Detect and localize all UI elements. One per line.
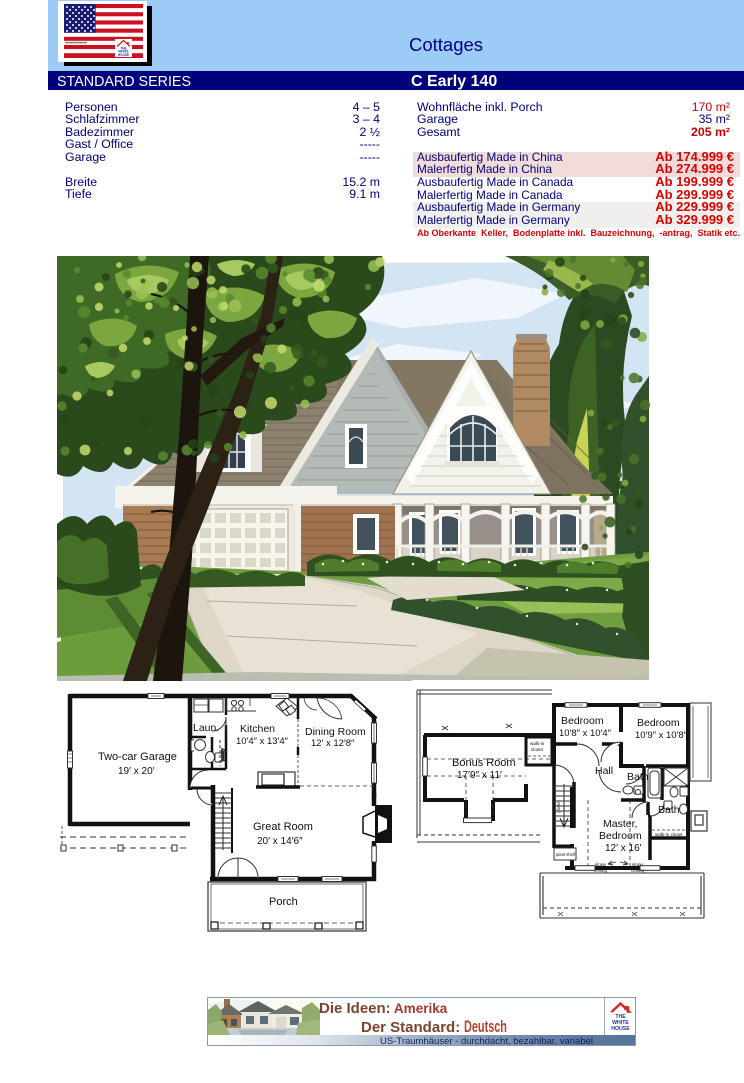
svg-text:pantry: pantry <box>220 748 225 761</box>
svg-text:19′ x 20′: 19′ x 20′ <box>118 766 155 777</box>
svg-text:10′8″ x 10′4″: 10′8″ x 10′4″ <box>559 728 612 739</box>
svg-text:Master,: Master, <box>603 818 637 830</box>
svg-text:Bonus Room: Bonus Room <box>452 757 516 769</box>
svg-text:Bedroom: Bedroom <box>561 715 604 727</box>
svg-text:closet: closet <box>531 747 544 752</box>
svg-text:Bedroom: Bedroom <box>637 717 680 729</box>
svg-text:Hall: Hall <box>595 765 613 777</box>
svg-text:Great Room: Great Room <box>253 821 313 833</box>
svg-text:12′ x 16′: 12′ x 16′ <box>605 843 642 854</box>
svg-text:slope: slope <box>595 862 606 867</box>
svg-text:10′4″ x 13′4″: 10′4″ x 13′4″ <box>236 736 289 747</box>
svg-text:20′ x 14′6″: 20′ x 14′6″ <box>257 836 303 847</box>
svg-text:walk-in closet: walk-in closet <box>655 832 683 837</box>
svg-text:HOUSE: HOUSE <box>611 1026 630 1032</box>
svg-text:Bath: Bath <box>627 771 649 783</box>
svg-text:(down): (down) <box>556 800 561 813</box>
svg-text:12′ x 12′8″: 12′ x 12′8″ <box>311 738 355 749</box>
svg-text:Bedroom: Bedroom <box>599 830 642 842</box>
svg-text:ceiling: ceiling <box>594 868 607 873</box>
svg-text:ceiling: ceiling <box>631 868 644 873</box>
svg-text:walk-in: walk-in <box>530 741 545 746</box>
svg-text:slope: slope <box>632 862 643 867</box>
svg-text:Bath: Bath <box>658 804 680 816</box>
svg-text:Laun.: Laun. <box>193 722 219 734</box>
svg-text:Porch: Porch <box>269 896 298 908</box>
svg-text:Dining Room: Dining Room <box>305 726 366 738</box>
svg-text:Kitchen: Kitchen <box>240 723 275 735</box>
svg-text:Two-car Garage: Two-car Garage <box>98 751 177 763</box>
svg-text:plant shelf: plant shelf <box>556 852 576 857</box>
svg-text:17′9″ x 11′: 17′9″ x 11′ <box>457 770 502 781</box>
svg-text:HOUSE: HOUSE <box>118 53 129 57</box>
svg-text:10′9″ x 10′8″: 10′9″ x 10′8″ <box>635 730 688 741</box>
